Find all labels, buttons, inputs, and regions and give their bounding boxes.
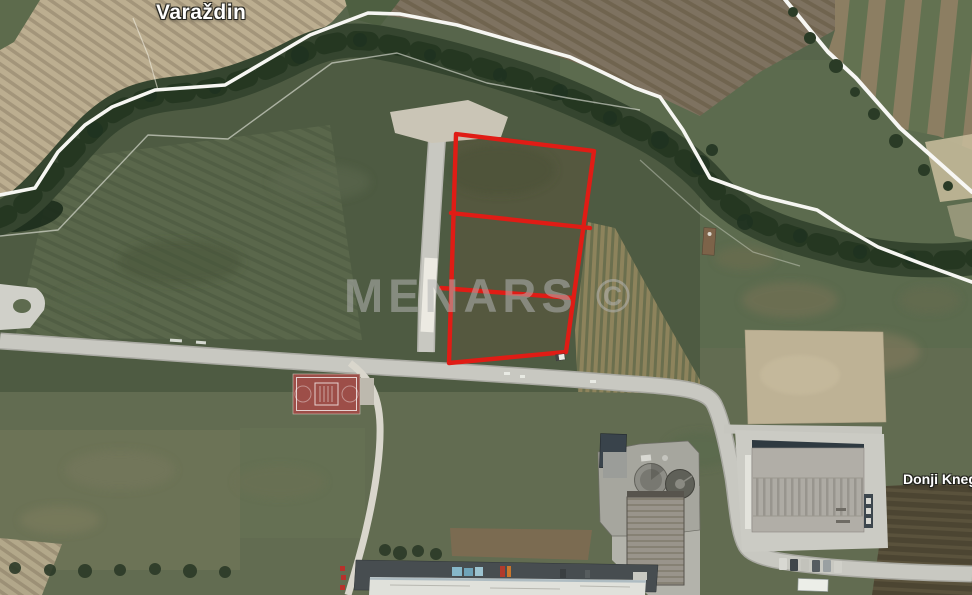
warehouse [735, 430, 888, 552]
map-viewport[interactable]: Varaždin Donji Kneg MENARS © [0, 0, 972, 595]
watermark-text: MENARS © [344, 268, 635, 323]
footbridge [702, 228, 716, 256]
place-label-varazdin: Varaždin [156, 1, 246, 25]
place-label-donji-kneginec: Donji Kneg [903, 471, 972, 487]
parcel-outline [441, 134, 594, 363]
small-truck [556, 354, 566, 361]
white-van [798, 578, 828, 591]
